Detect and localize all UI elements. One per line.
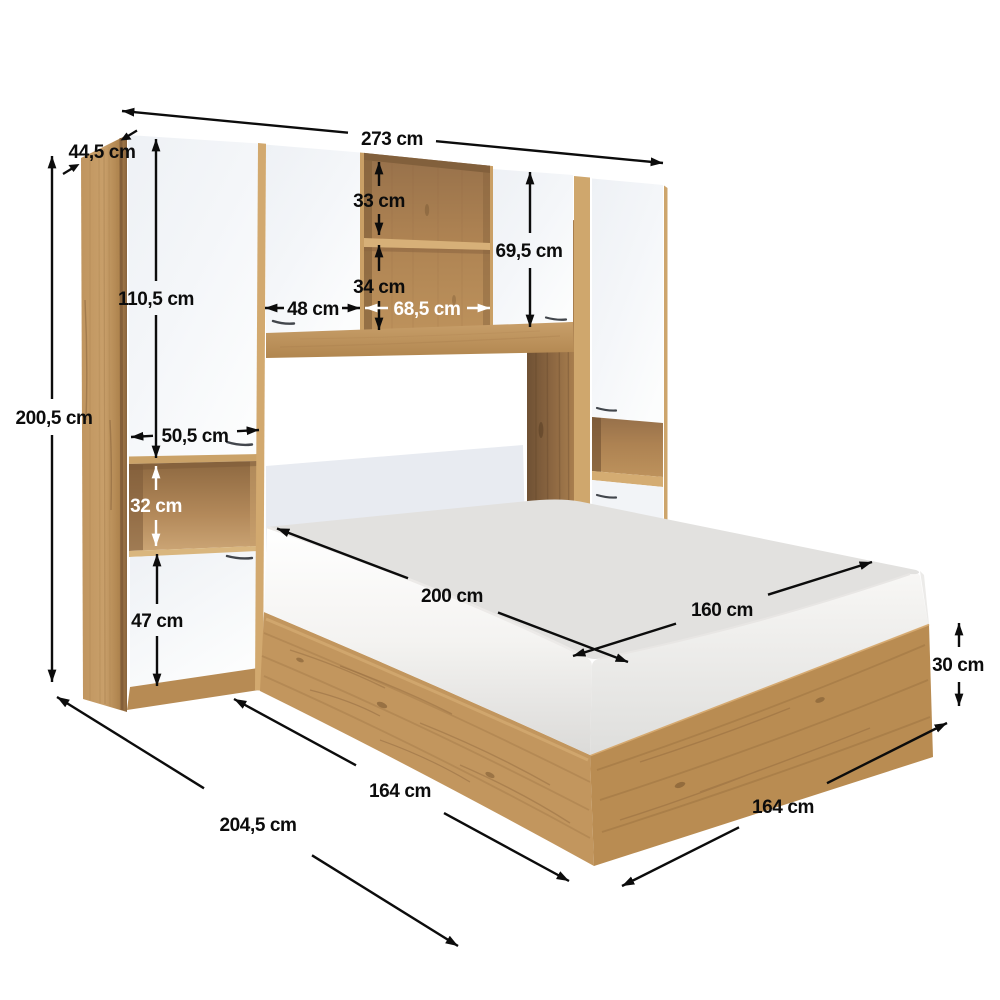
svg-text:273 cm: 273 cm: [361, 129, 423, 150]
svg-text:34 cm: 34 cm: [353, 277, 405, 298]
svg-text:200 cm: 200 cm: [421, 586, 483, 607]
svg-text:204,5 cm: 204,5 cm: [219, 815, 296, 836]
svg-text:44,5 cm: 44,5 cm: [69, 142, 136, 163]
svg-text:32 cm: 32 cm: [130, 496, 182, 517]
svg-text:30 cm: 30 cm: [932, 655, 984, 676]
svg-text:160 cm: 160 cm: [691, 600, 753, 621]
svg-text:200,5 cm: 200,5 cm: [15, 408, 92, 429]
svg-text:69,5 cm: 69,5 cm: [496, 241, 563, 262]
svg-text:47 cm: 47 cm: [131, 611, 183, 632]
svg-text:50,5 cm: 50,5 cm: [162, 426, 229, 447]
svg-text:164 cm: 164 cm: [752, 797, 814, 818]
svg-text:48 cm: 48 cm: [287, 299, 339, 320]
svg-text:68,5 cm: 68,5 cm: [394, 299, 461, 320]
svg-text:110,5 cm: 110,5 cm: [118, 289, 194, 310]
svg-text:164 cm: 164 cm: [369, 781, 431, 802]
svg-text:33 cm: 33 cm: [353, 191, 405, 212]
